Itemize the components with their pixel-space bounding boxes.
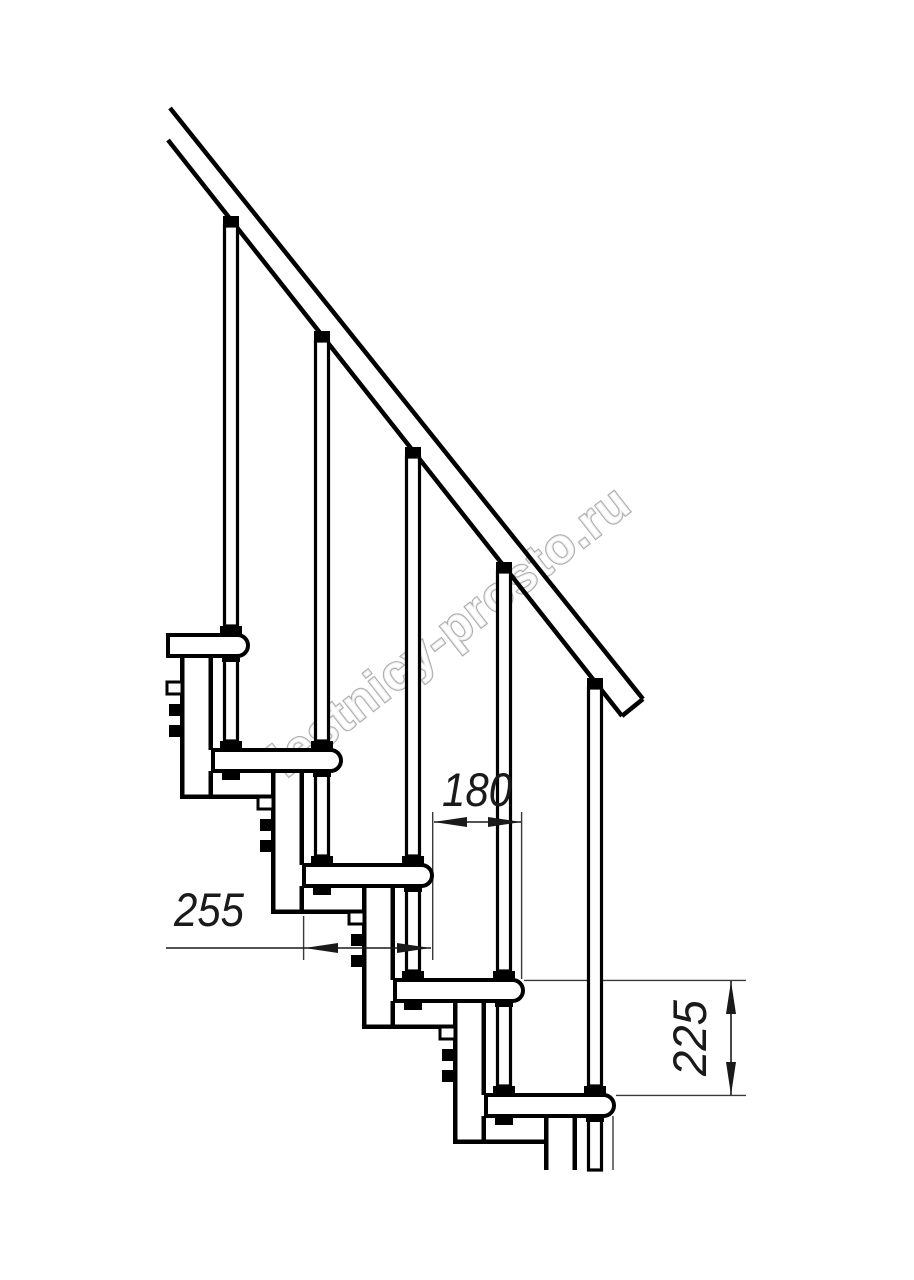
bolt: [351, 934, 362, 946]
under-tread-nut: [404, 1001, 422, 1010]
arrowhead-left: [434, 817, 468, 827]
support-module-3: [349, 886, 453, 1029]
staircase-technical-drawing: lestnicy-prosto.ru: [0, 0, 914, 1280]
rod-flange: [220, 741, 242, 751]
baluster-flange: [220, 626, 242, 636]
dim-255-label: 255: [173, 883, 245, 936]
baluster-flange: [584, 1086, 606, 1096]
rod-collar: [586, 1116, 604, 1122]
baluster-rod: [407, 888, 420, 971]
bolt: [260, 840, 271, 852]
tread-3: [304, 865, 432, 886]
rod-collar: [495, 1001, 513, 1007]
under-tread-nut: [495, 1116, 513, 1125]
rod-flange: [402, 971, 424, 981]
baluster-rod: [589, 1118, 602, 1170]
mount-tab: [349, 912, 364, 924]
tread-2: [213, 750, 341, 771]
baluster-flange: [493, 971, 515, 981]
bolt: [169, 725, 180, 737]
dim-225-label: 225: [663, 999, 716, 1077]
tread-1: [168, 635, 248, 656]
baluster-1: [225, 226, 238, 626]
rod-flange: [493, 1086, 515, 1096]
baluster-rod: [498, 1003, 511, 1086]
baluster-flange: [402, 856, 424, 866]
handrail-end-cap: [622, 699, 643, 716]
dimension-225: 225: [663, 981, 736, 1095]
support-module-1: [167, 656, 271, 799]
baluster-rod: [225, 658, 238, 741]
arrowhead-up: [726, 981, 736, 1014]
mount-tab: [167, 682, 182, 694]
rod-flange: [311, 856, 333, 866]
under-tread-nut: [222, 771, 240, 780]
dim-180-label: 180: [442, 763, 512, 816]
support-module-4: [440, 1001, 544, 1144]
baluster-5: [589, 688, 602, 1086]
arrowhead-left: [305, 943, 339, 953]
support-module-5: [544, 1116, 577, 1170]
tread-5: [486, 1095, 614, 1116]
bolt: [351, 955, 362, 967]
baluster-3: [407, 457, 420, 856]
baluster-2: [316, 341, 329, 741]
drawing-svg: lestnicy-prosto.ru: [0, 0, 914, 1280]
bolt: [442, 1070, 453, 1082]
mount-tab: [440, 1027, 455, 1039]
rod-collar: [404, 886, 422, 892]
baluster-flange: [311, 741, 333, 751]
arrowhead-down: [726, 1062, 736, 1095]
bolt: [442, 1049, 453, 1061]
under-tread-nut: [313, 886, 331, 895]
mount-tab: [258, 797, 273, 809]
baluster-rod: [316, 773, 329, 856]
bolt: [260, 819, 271, 831]
rod-collar: [222, 656, 240, 662]
tread-4: [395, 980, 523, 1001]
bolt: [169, 704, 180, 716]
rod-collar: [313, 771, 331, 777]
support-module-2: [258, 771, 362, 914]
